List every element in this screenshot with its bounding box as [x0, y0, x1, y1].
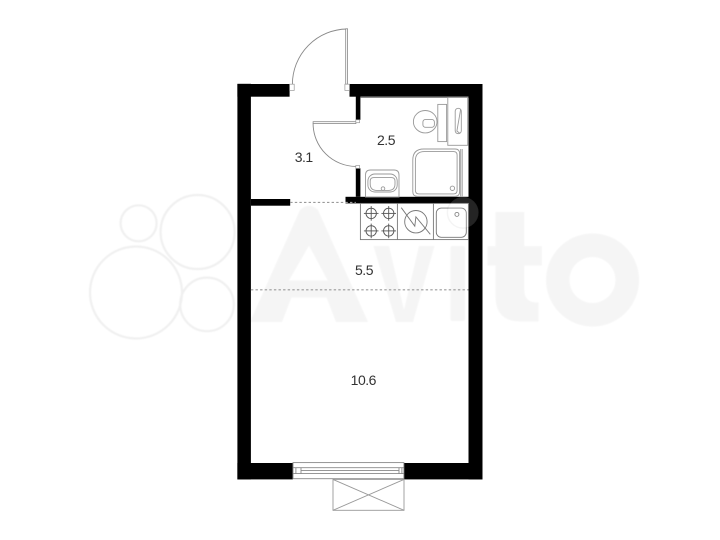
svg-text:2.5: 2.5	[377, 132, 396, 148]
svg-text:3.1: 3.1	[295, 149, 314, 165]
svg-text:10.6: 10.6	[351, 372, 377, 388]
svg-text:5.5: 5.5	[355, 262, 374, 278]
